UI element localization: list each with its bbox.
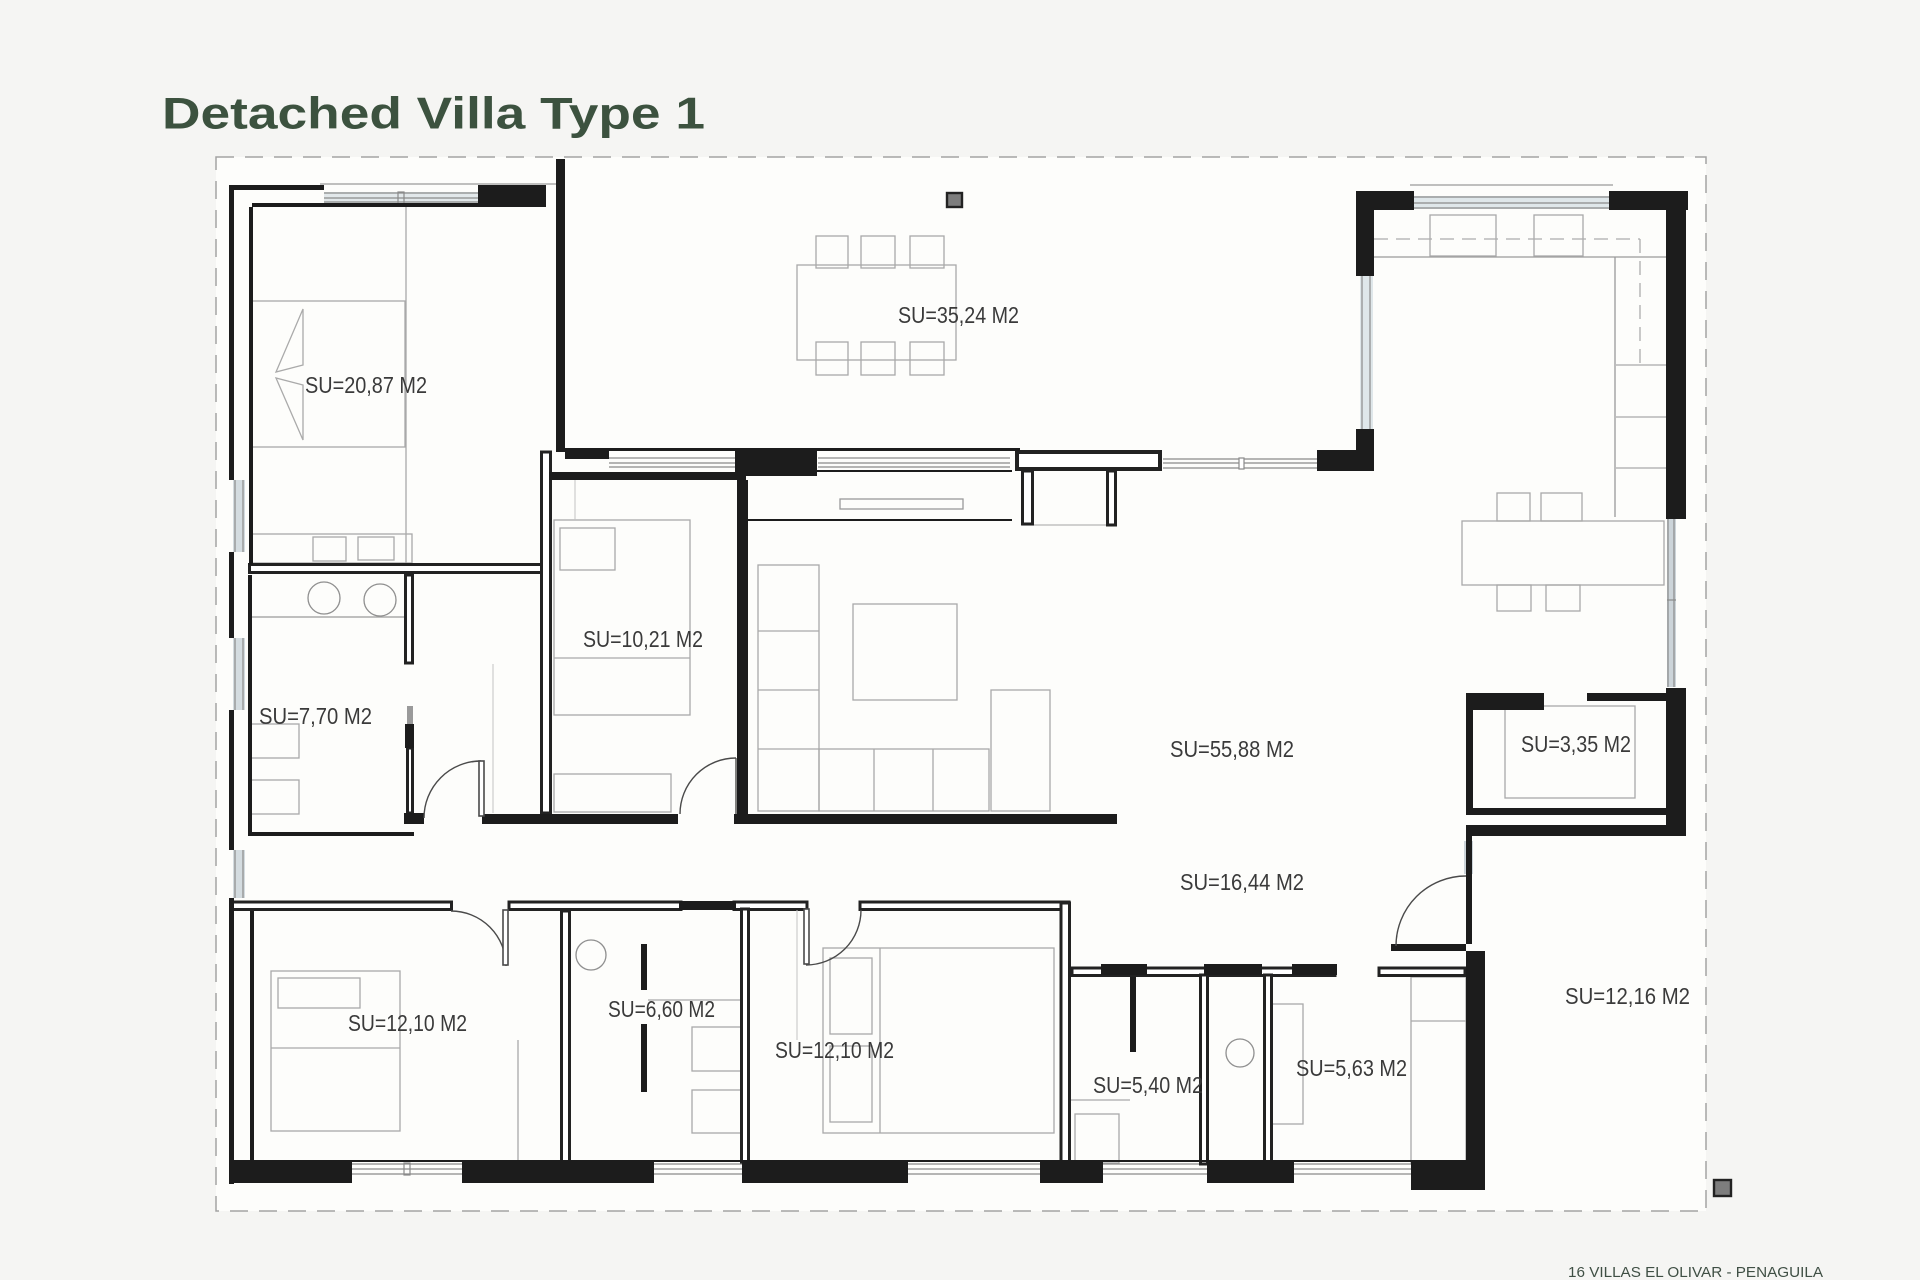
svg-text:SU=6,60 M2: SU=6,60 M2 <box>608 996 715 1022</box>
svg-text:SU=5,40 M2: SU=5,40 M2 <box>1093 1072 1203 1098</box>
svg-text:SU=35,24 M2: SU=35,24 M2 <box>898 302 1019 328</box>
svg-text:SU=12,16 M2: SU=12,16 M2 <box>1565 983 1690 1009</box>
svg-text:SU=3,35 M2: SU=3,35 M2 <box>1521 731 1631 757</box>
svg-text:SU=12,10 M2: SU=12,10 M2 <box>775 1037 894 1063</box>
svg-text:SU=55,88 M2: SU=55,88 M2 <box>1170 736 1294 762</box>
svg-text:16 VILLAS EL OLIVAR - PENAGUI: 16 VILLAS EL OLIVAR - PENAGUILA <box>1568 1265 1823 1280</box>
svg-text:SU=12,10 M2: SU=12,10 M2 <box>348 1010 467 1036</box>
svg-text:SU=5,63 M2: SU=5,63 M2 <box>1296 1055 1407 1081</box>
svg-text:SU=7,70 M2: SU=7,70 M2 <box>259 703 372 729</box>
svg-text:Detached Villa Type 1: Detached Villa Type 1 <box>162 90 705 139</box>
svg-text:SU=10,21 M2: SU=10,21 M2 <box>583 626 703 652</box>
svg-text:SU=16,44 M2: SU=16,44 M2 <box>1180 869 1304 895</box>
svg-text:SU=20,87 M2: SU=20,87 M2 <box>305 372 427 398</box>
